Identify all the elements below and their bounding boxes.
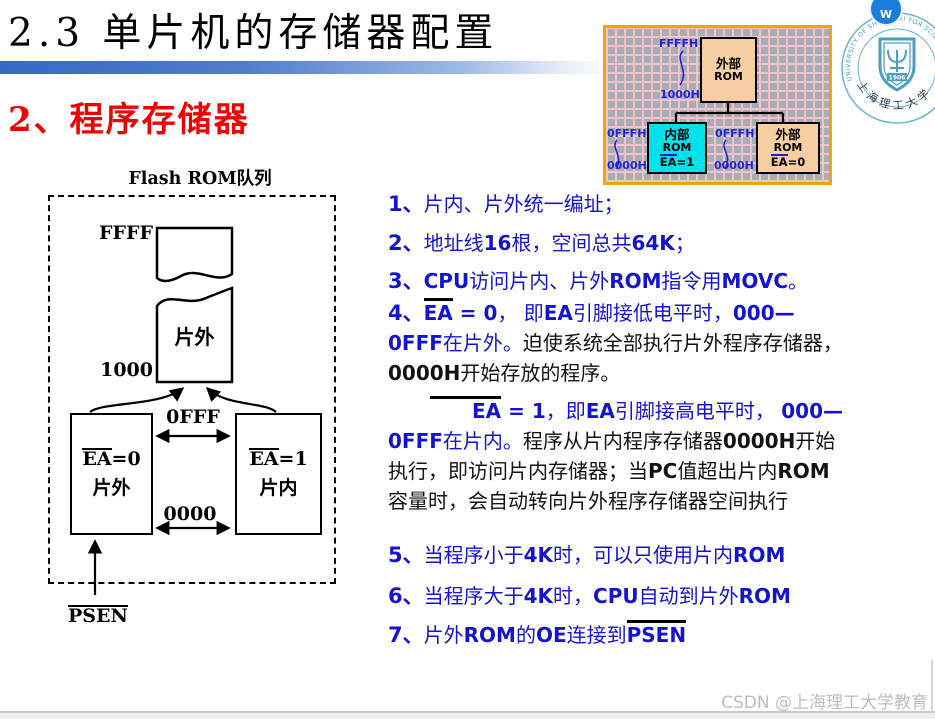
box-ea0-line: EA=0 xyxy=(82,448,140,470)
mini-label-ffffh: FFFFH xyxy=(659,37,698,50)
badge-w-icon: W xyxy=(880,8,892,21)
flash-rom-diagram: Flash ROM队列 FFFF 片外 1000 0FFF 0000 EA=0 … xyxy=(40,165,340,640)
note-item-5: 5、当程序小于4K时，可以只使用片内ROM xyxy=(388,541,935,571)
box-ea0-name: 片外 xyxy=(92,473,130,500)
mini-int-rom-ea: EA=1 xyxy=(660,154,694,169)
watermark: CSDN @上海理工大学教育 xyxy=(721,688,928,713)
section-subtitle: 2、程序存储器 xyxy=(8,92,250,141)
mini-ext-ea-value: =0 xyxy=(788,155,806,169)
mini-label-0000h-left: 0000H xyxy=(607,159,647,172)
mini-int-ea-value: =1 xyxy=(677,155,695,169)
mini-ext-rom-bot-line1: 外部 xyxy=(775,128,800,141)
mini-box-external-rom-top: 外部 ROM xyxy=(700,37,757,103)
mini-int-rom-line1: 内部 xyxy=(664,128,689,141)
page-bottom-fill xyxy=(0,713,935,719)
flash-diagram-title: Flash ROM队列 xyxy=(95,165,305,190)
page-right-edge xyxy=(931,660,933,713)
note-paragraph-ea1: EA = 1，即EA引脚接高电平时， 000—0FFF在片内。程序从片内程序存储… xyxy=(388,396,935,517)
mini-ext-rom-bot-ea: EA=0 xyxy=(771,154,805,169)
box-ea0-offchip: EA=0 片外 xyxy=(70,413,153,535)
label-offchip: 片外 xyxy=(157,321,232,350)
mini-ext-ea-overline: EA xyxy=(771,154,788,168)
mini-ext-rom-top-line2: ROM xyxy=(714,70,743,83)
mini-ext-rom-top-line1: 外部 xyxy=(716,57,741,70)
mini-label-0fffh-mid: 0FFFH xyxy=(715,127,754,140)
label-psen: PSEN xyxy=(68,605,128,627)
label-0fff: 0FFF xyxy=(153,406,233,428)
note-item-1: 1、片内、片外统一编址； xyxy=(388,190,935,220)
note-item-3: 3、CPU访问片内、片外ROM指令用MOVC。 xyxy=(388,267,935,297)
mini-int-ea-overline: EA xyxy=(660,154,677,168)
box-ea1-onchip: EA=1 片内 xyxy=(235,413,322,535)
ea1-overline: EA xyxy=(249,448,278,469)
mini-box-external-rom-bottom: 外部 ROM EA=0 xyxy=(756,122,820,174)
logo-year: 1906 xyxy=(889,75,906,82)
box-ea1-name: 片内 xyxy=(259,473,297,500)
note-item-2: 2、地址线16根，空间总共64K； xyxy=(388,229,935,259)
label-ffff: FFFF xyxy=(98,222,153,244)
label-0000: 0000 xyxy=(150,503,230,525)
mini-label-1000h: 1000H xyxy=(660,88,700,101)
mini-ext-rom-bot-line2: ROM xyxy=(774,141,803,154)
accent-bar xyxy=(0,61,615,74)
slide-page: { "page": { "title": "2.3 单片机的存储器配置", "s… xyxy=(0,0,935,719)
label-1000: 1000 xyxy=(98,359,153,381)
page-title: 2.3 单片机的存储器配置 xyxy=(8,2,498,58)
mini-int-rom-line2: ROM xyxy=(663,141,692,154)
mini-memory-diagram: FFFFH 1000H 外部 ROM 0FFFH 0000H 内部 ROM EA… xyxy=(603,25,832,185)
note-item-6: 6、当程序大于4K时，CPU自动到片外ROM xyxy=(388,582,935,612)
ea0-value: =0 xyxy=(112,448,141,470)
mini-label-0000h-mid: 0000H xyxy=(714,159,754,172)
mini-box-internal-rom: 内部 ROM EA=1 xyxy=(647,122,707,174)
ea0-overline: EA xyxy=(82,448,111,469)
note-item-4: 4、EA = 0， 即EA引脚接低电平时，000—0FFF在片外。迫使系统全部执… xyxy=(388,298,935,389)
mini-label-0fffh-left: 0FFFH xyxy=(607,127,646,140)
box-ea1-line: EA=1 xyxy=(249,448,307,470)
ea1-value: =1 xyxy=(279,448,308,470)
note-item-7: 7、片外ROM的OE连接到PSEN xyxy=(388,620,935,651)
psen-overline: PSEN xyxy=(68,605,128,626)
